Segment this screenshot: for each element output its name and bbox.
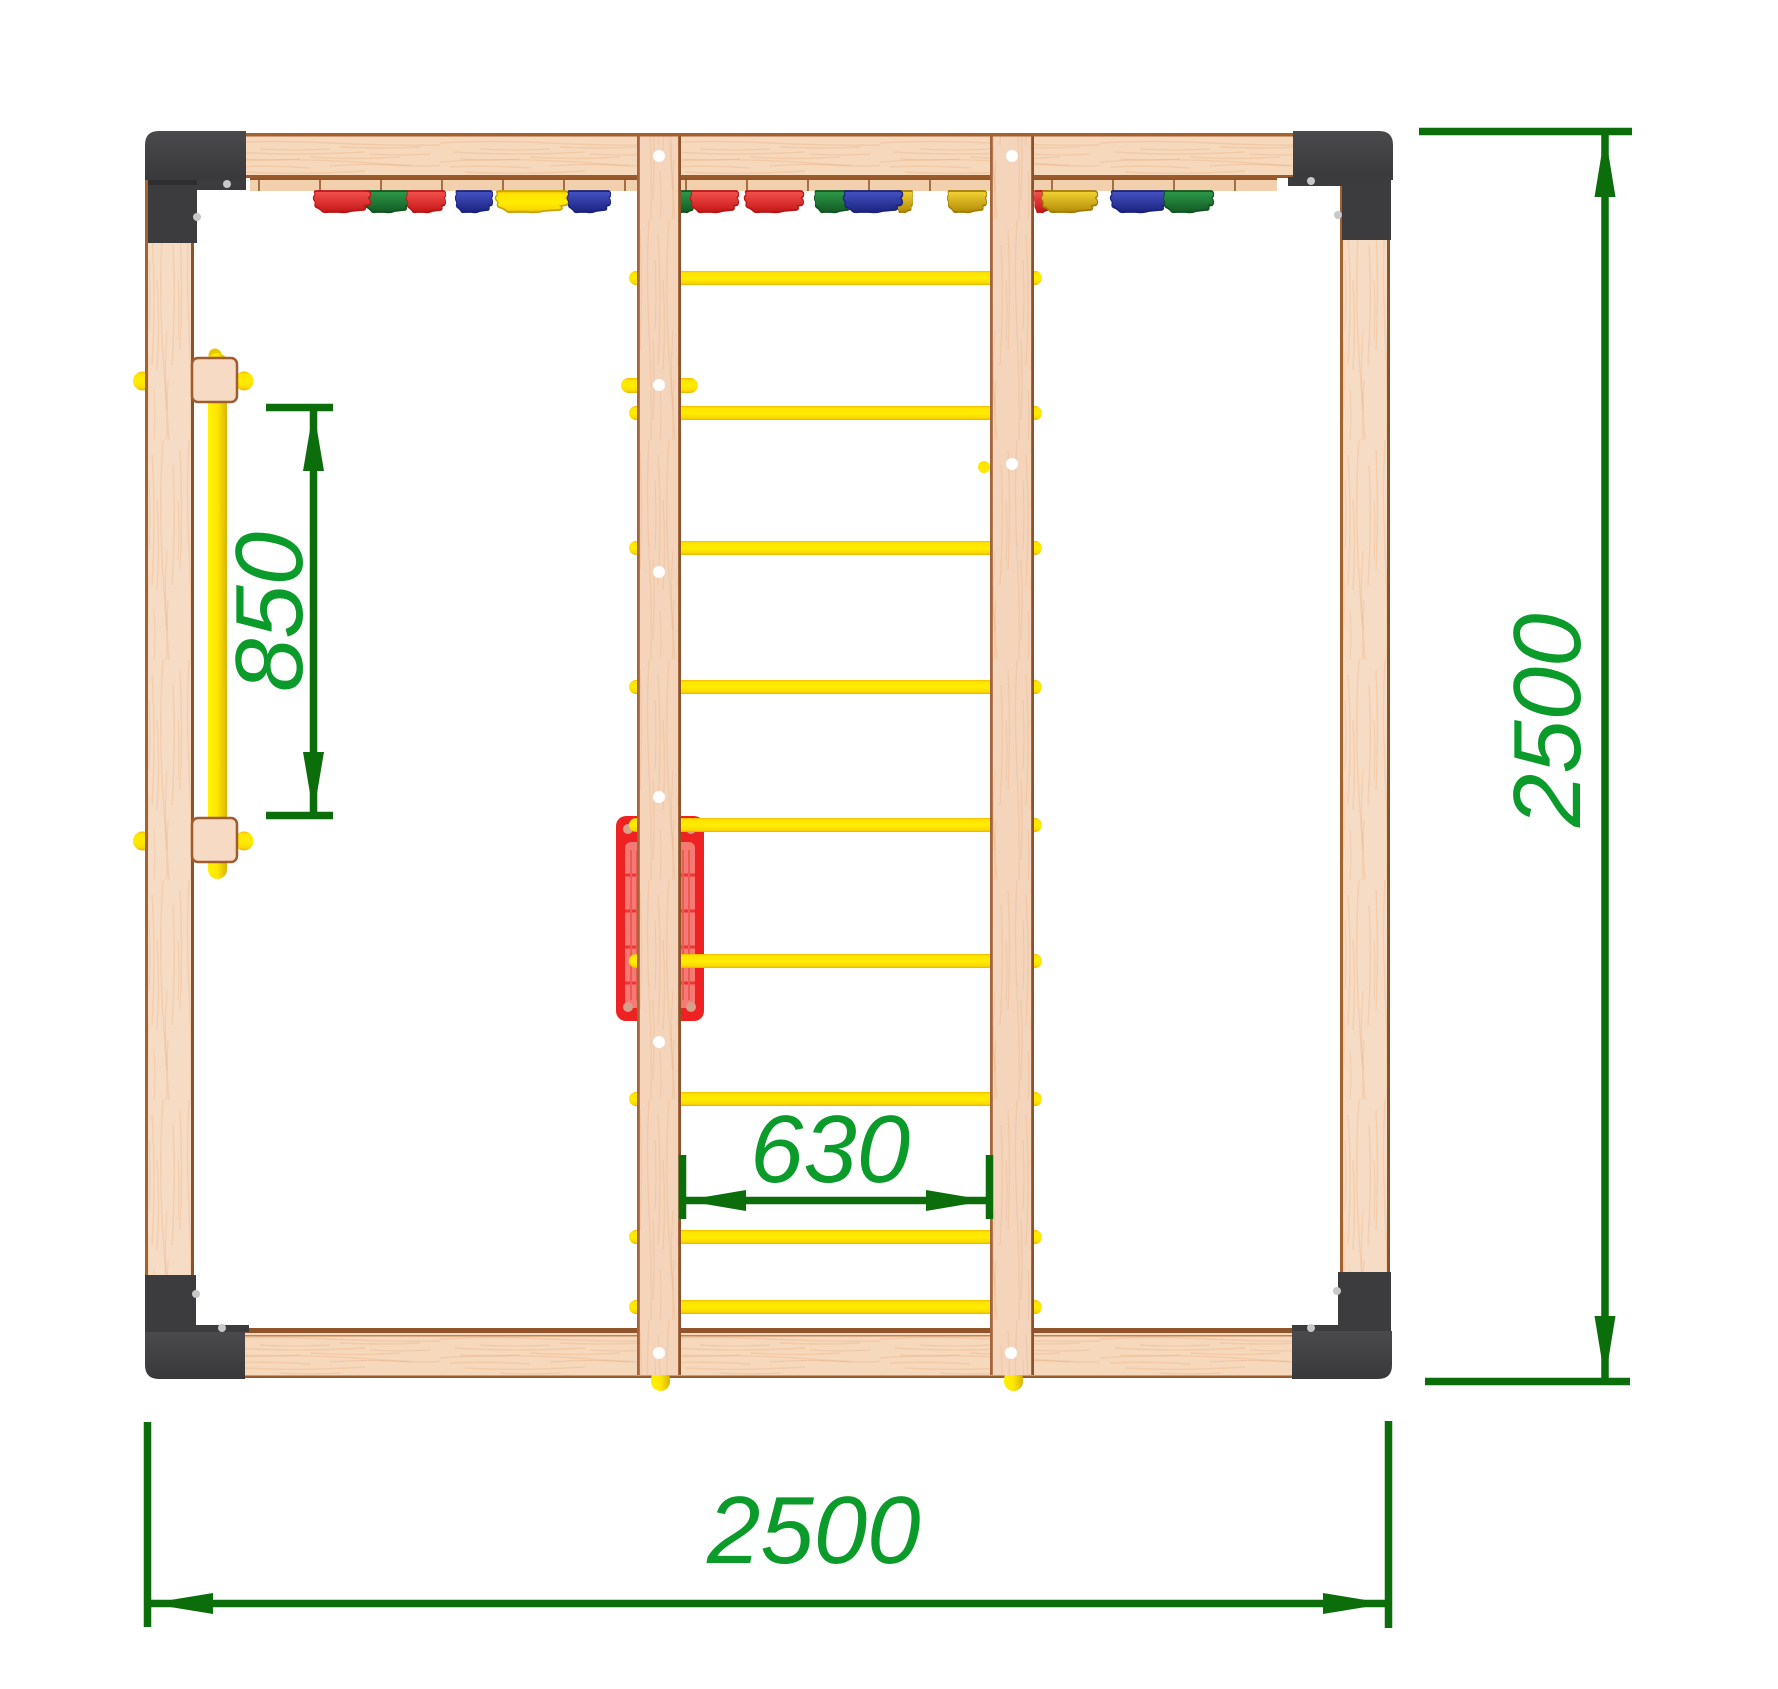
svg-text:630: 630: [750, 1096, 910, 1203]
svg-text:850: 850: [216, 532, 323, 692]
svg-text:2500: 2500: [1494, 613, 1601, 828]
svg-text:2500: 2500: [706, 1477, 921, 1584]
